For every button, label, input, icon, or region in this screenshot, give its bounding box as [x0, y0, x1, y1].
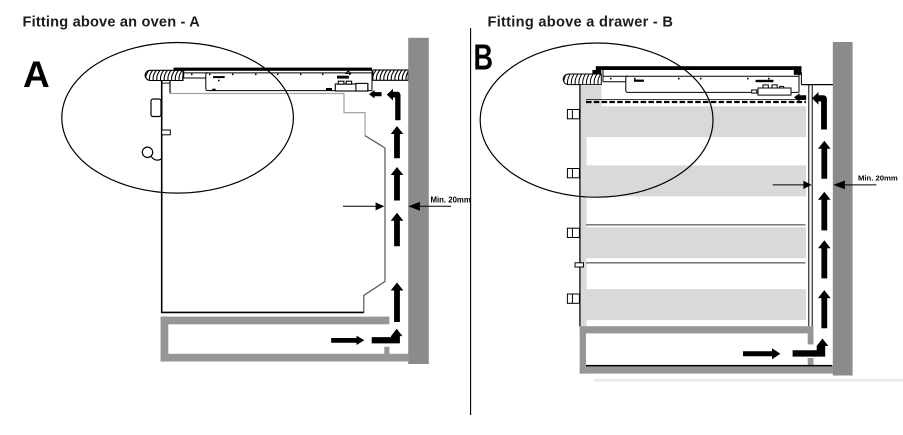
svg-text:Fitting above an oven - A: Fitting above an oven - A: [23, 15, 201, 31]
svg-text:Fitting above a drawer - B: Fitting above a drawer - B: [488, 15, 674, 31]
svg-text:B: B: [474, 37, 494, 78]
svg-text:Min. 20mm: Min. 20mm: [431, 195, 471, 204]
svg-text:A: A: [23, 54, 50, 95]
svg-text:Min. 20mm: Min. 20mm: [858, 173, 898, 182]
